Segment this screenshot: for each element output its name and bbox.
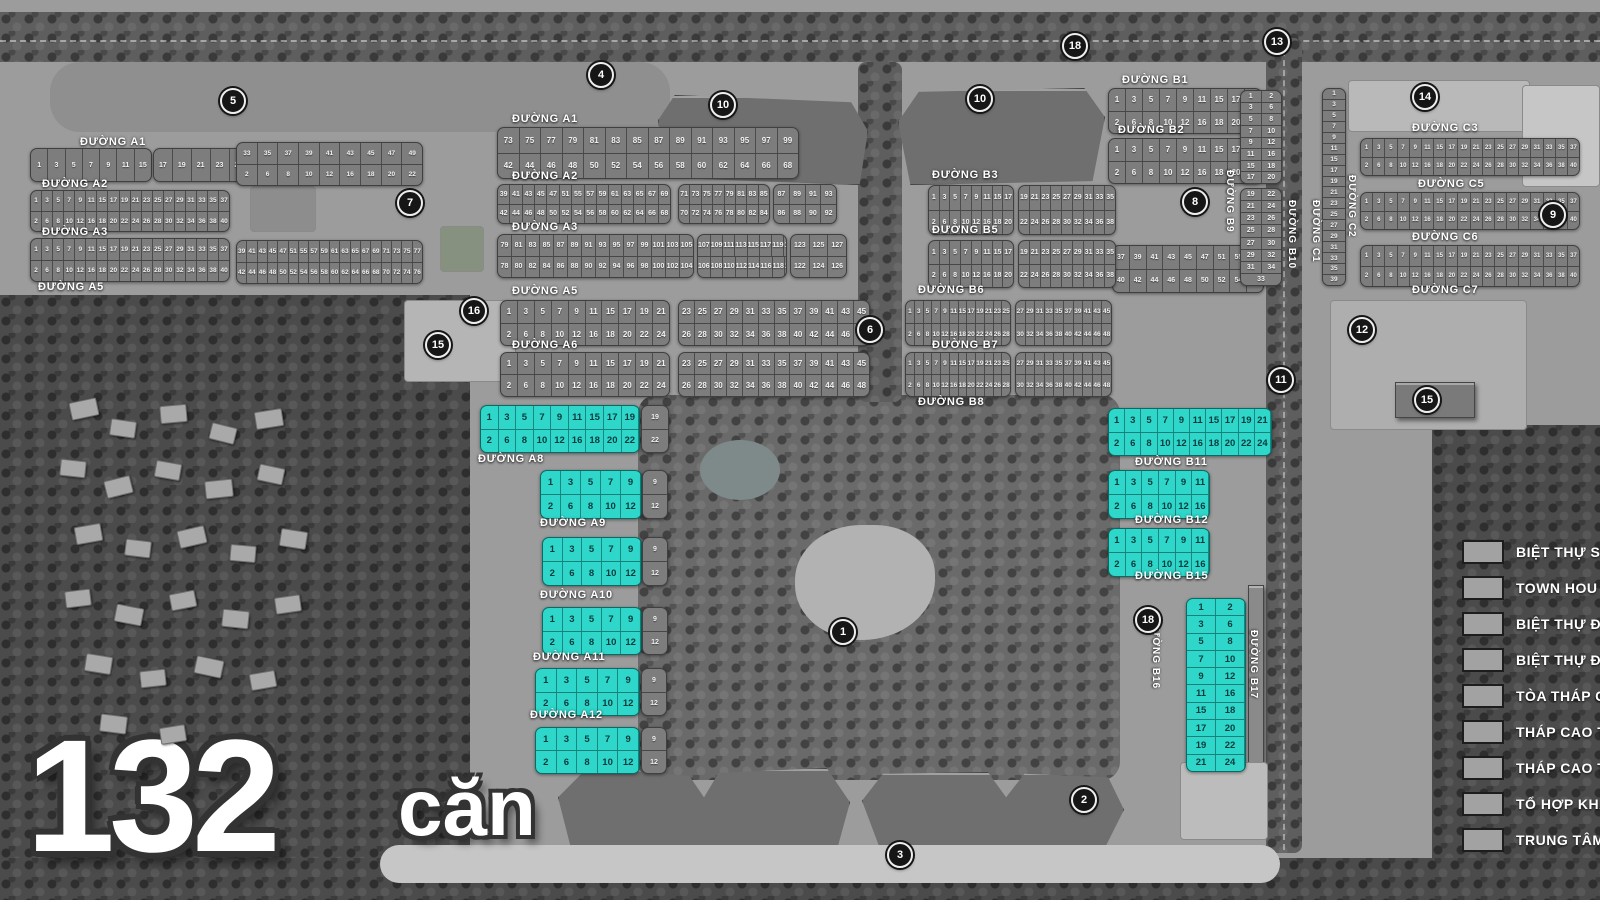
lot-cyA12-r1-2[interactable]: 2 <box>536 751 557 773</box>
street-label-c1: ĐƯỜNG C1 <box>1310 200 1321 263</box>
lot-a1l_s3-r0-37: 37 <box>278 143 299 164</box>
lot-cyB12-r0-11[interactable]: 11 <box>1192 529 1209 552</box>
lot-v1a-r7-17: 17 <box>1241 172 1262 183</box>
lot-row: 1357911151719212325272931333537 <box>1361 246 1579 266</box>
lot-cyA11-r0-9[interactable]: 9 <box>618 669 639 692</box>
lot-c3-r1-36: 36 <box>1544 158 1556 176</box>
lot-cyA_top-r1-6[interactable]: 6 <box>499 430 517 453</box>
lot-cyB16-r2-5[interactable]: 5 <box>1187 634 1216 650</box>
lot-b7s1-r1-20: 20 <box>967 375 976 396</box>
lot-b5s1-r0-1: 1 <box>929 241 940 264</box>
lot-row: 268101216182022 <box>481 429 639 453</box>
lot-cyB_top-r1-2[interactable]: 2 <box>1109 433 1125 456</box>
lot-a1l_s3-r1-8: 8 <box>278 165 299 186</box>
map-marker-7[interactable]: 7 <box>397 190 423 216</box>
lot-a2c2-r1-70: 70 <box>679 205 690 224</box>
lot-cyA9-r0-1[interactable]: 1 <box>543 538 563 561</box>
lot-b3s2-r1-38: 38 <box>1105 211 1115 235</box>
lot-cyA8-r0-3[interactable]: 3 <box>561 471 581 494</box>
lot-cyB16-r1-6[interactable]: 6 <box>1216 616 1245 632</box>
lot-a3l2-r0-67: 67 <box>361 241 371 262</box>
lot-b7s2-r1-40: 40 <box>1064 375 1074 396</box>
lot-a2c1-r0-39: 39 <box>498 185 510 204</box>
lot-b6s2-r0-27: 27 <box>1016 301 1026 323</box>
lot-cyA10-r0-3[interactable]: 3 <box>563 608 583 631</box>
lot-a3l2-r1-64: 64 <box>351 263 361 284</box>
lot-b5s2-r0-33: 33 <box>1094 241 1105 264</box>
lot-a5c2-r1-34: 34 <box>743 324 759 346</box>
lot-b2-r1-6: 6 <box>1126 162 1143 184</box>
lot-cyB_top-r1-8[interactable]: 8 <box>1141 433 1157 456</box>
lot-b6s2-r0-45: 45 <box>1102 301 1111 323</box>
lot-cyB12-r0-3[interactable]: 3 <box>1126 529 1143 552</box>
lot-a1l_s3-r1-22: 22 <box>402 165 422 186</box>
lot-c3-r0-1: 1 <box>1361 139 1373 157</box>
lot-cyA12-r0-1[interactable]: 1 <box>536 728 557 750</box>
street-label-a9: ĐƯỜNG A9 <box>540 517 606 529</box>
lot-cyB16-r8-19[interactable]: 19 <box>1187 737 1216 753</box>
lot-b6s1-r0-23: 23 <box>994 301 1003 323</box>
lot-a3l-r1-2: 2 <box>31 261 42 282</box>
lot-cyB_top-r0-5[interactable]: 5 <box>1141 409 1157 432</box>
lot-cyB_top-r1-6[interactable]: 6 <box>1125 433 1141 456</box>
lot-b7s2-r0-35: 35 <box>1054 353 1064 374</box>
block-tA9: 912 <box>642 537 668 586</box>
lot-c3-r0-27: 27 <box>1507 139 1519 157</box>
lot-b3s2-r1-26: 26 <box>1041 211 1052 235</box>
lot-cyA_top-r1-8[interactable]: 8 <box>516 430 534 453</box>
lot-cyA12-r1-6[interactable]: 6 <box>557 751 578 773</box>
lot-a3l-r1-8: 8 <box>53 261 64 282</box>
lot-cyA_top-r0-7[interactable]: 7 <box>534 406 552 429</box>
lot-c3-r0-25: 25 <box>1495 139 1507 157</box>
lot-b2-r1-8: 8 <box>1143 162 1160 184</box>
lot-a1l_s2-r0-23: 23 <box>211 149 230 181</box>
lot-b7s1-r1-10: 10 <box>932 375 941 396</box>
lot-a2c3-r1-88: 88 <box>790 205 806 224</box>
lot-a3l-r1-16: 16 <box>86 261 97 282</box>
lot-cyA12-r0-3[interactable]: 3 <box>557 728 578 750</box>
lot-cyA8-r1-10[interactable]: 10 <box>601 495 621 518</box>
lot-a6c2-r0-39: 39 <box>806 353 822 374</box>
lot-cyB_top-r0-15[interactable]: 15 <box>1206 409 1222 432</box>
map-marker-15[interactable]: 15 <box>425 332 451 358</box>
lot-a2l-r1-24: 24 <box>131 212 142 232</box>
lot-cyA10-r1-12[interactable]: 12 <box>621 632 641 655</box>
lot-cyB16-r9-21[interactable]: 21 <box>1187 755 1216 771</box>
lot-cyA_top-r0-9[interactable]: 9 <box>551 406 569 429</box>
lot-a2c2-r1-74: 74 <box>702 205 713 224</box>
lot-b6s2-r1-38: 38 <box>1054 324 1064 346</box>
map-marker-8[interactable]: 8 <box>1182 189 1208 215</box>
lot-b7s2-r0-43: 43 <box>1093 353 1103 374</box>
lot-cyB16-r2-8[interactable]: 8 <box>1216 634 1245 650</box>
lot-a3c1-r1-78: 78 <box>498 257 512 278</box>
street-label-a5l: ĐƯỜNG A5 <box>38 281 104 293</box>
map-marker-10[interactable]: 10 <box>967 86 993 112</box>
lot-cyB11-r1-2[interactable]: 2 <box>1109 495 1126 518</box>
lot-a3l2-r0-43: 43 <box>258 241 268 262</box>
lot-a1c-r0-93: 93 <box>713 128 735 153</box>
lot-cyA_top-r1-20[interactable]: 20 <box>604 430 622 453</box>
lot-cyB12-r0-7[interactable]: 7 <box>1159 529 1176 552</box>
lot-cyB16-r3-10[interactable]: 10 <box>1216 651 1245 667</box>
lot-cyA8-r1-6[interactable]: 6 <box>561 495 581 518</box>
lot-a6c2-r1-34: 34 <box>743 375 759 396</box>
lot-c5-r0-7: 7 <box>1398 193 1410 211</box>
lot-a2l-r0-7: 7 <box>64 191 75 211</box>
map-marker-2[interactable]: 2 <box>1071 787 1097 813</box>
lot-row: 13579 <box>543 608 641 631</box>
lot-row: 268101216182022242628303234363840 <box>1361 157 1579 176</box>
lot-cyA_top-r1-12[interactable]: 12 <box>551 430 569 453</box>
lot-a3c2-r1-112: 112 <box>736 257 748 278</box>
lot-b1-r0-7: 7 <box>1160 89 1177 111</box>
lot-a1c-r1-60: 60 <box>692 154 714 179</box>
lot-cyB_top-r1-16[interactable]: 16 <box>1190 433 1206 456</box>
lot-a3l-r1-38: 38 <box>208 261 219 282</box>
lot-row: 9 <box>643 471 667 494</box>
lot-a2c2-r1-80: 80 <box>736 205 747 224</box>
lot-b7s2-r0-41: 41 <box>1083 353 1093 374</box>
map-marker-11[interactable]: 11 <box>1268 367 1294 393</box>
lot-row: 3941434547515557596163656769 <box>498 185 670 204</box>
lot-a5c2-r0-27: 27 <box>711 301 727 323</box>
lot-cyA_top-r1-16[interactable]: 16 <box>569 430 587 453</box>
lot-row: 9 <box>643 538 667 561</box>
lot-cyA9-r1-12[interactable]: 12 <box>621 562 641 585</box>
lot-b3s2-r1-34: 34 <box>1084 211 1095 235</box>
lot-b5s2-r0-21: 21 <box>1030 241 1041 264</box>
map-marker-16[interactable]: 16 <box>461 298 487 324</box>
lot-cyA_top-r0-5[interactable]: 5 <box>516 406 534 429</box>
map-marker-9[interactable]: 9 <box>1540 202 1566 228</box>
lot-cyB_top-r0-19[interactable]: 19 <box>1239 409 1255 432</box>
lot-c3-r1-8: 8 <box>1385 158 1397 176</box>
lot-row: 1357911 <box>1109 529 1209 552</box>
lot-b3s1-r0-5: 5 <box>950 186 961 210</box>
lot-cyA11-r0-5[interactable]: 5 <box>577 669 598 692</box>
lot-a3c1-r0-93: 93 <box>596 235 610 256</box>
lot-a2l-r0-27: 27 <box>164 191 175 211</box>
lot-cyA8-r0-5[interactable]: 5 <box>581 471 601 494</box>
lot-cyA9-r0-5[interactable]: 5 <box>582 538 602 561</box>
master-plan-map: BIỆT THỰ SOTOWN HOUBIỆT THỰ ĐBIỆT THỰ ĐT… <box>0 0 1600 900</box>
lot-cyA_top-r0-19[interactable]: 19 <box>622 406 640 429</box>
map-marker-15[interactable]: 15 <box>1414 387 1440 413</box>
lot-cyB_top-r1-12[interactable]: 12 <box>1174 433 1190 456</box>
street-label-c6: ĐƯỜNG C6 <box>1412 231 1478 243</box>
lot-cyA_top-r0-11[interactable]: 11 <box>569 406 587 429</box>
map-marker-3[interactable]: 3 <box>887 842 913 868</box>
lot-cyA9-r1-10[interactable]: 10 <box>602 562 622 585</box>
lot-a3l2-r0-59: 59 <box>320 241 330 262</box>
lot-cyA12-r1-10[interactable]: 10 <box>598 751 619 773</box>
lot-cyB16-r1-3[interactable]: 3 <box>1187 616 1216 632</box>
lot-cyB_top-r1-18[interactable]: 18 <box>1206 433 1222 456</box>
lot-cyB12-r0-5[interactable]: 5 <box>1142 529 1159 552</box>
lot-a3l2-r1-56: 56 <box>309 263 319 284</box>
lot-cyA12-r1-8[interactable]: 8 <box>577 751 598 773</box>
lot-cyA9-r1-8[interactable]: 8 <box>582 562 602 585</box>
lot-cyB16-r6-18[interactable]: 18 <box>1216 703 1245 719</box>
lot-a5c2-r0-37: 37 <box>790 301 806 323</box>
lot-cyB16-r4-12[interactable]: 12 <box>1216 668 1245 684</box>
map-marker-1[interactable]: 1 <box>830 619 856 645</box>
lot-a3c1-r1-82: 82 <box>526 257 540 278</box>
lot-a2c1-r1-56: 56 <box>585 205 597 224</box>
lot-a6c1-r1-6: 6 <box>518 375 535 396</box>
lot-c6-r0-15: 15 <box>1434 246 1446 266</box>
lot-a6c1-r0-7: 7 <box>552 353 569 374</box>
map-marker-6[interactable]: 6 <box>857 317 883 343</box>
lot-row: 1357911 <box>1109 471 1209 494</box>
lot-row: 1357911151719 <box>1109 139 1261 161</box>
lot-cyB_top-r1-22[interactable]: 22 <box>1239 433 1255 456</box>
lot-cyB11-r0-3[interactable]: 3 <box>1126 471 1143 494</box>
lot-row: 25 <box>1323 208 1345 219</box>
lot-cyA11-r0-7[interactable]: 7 <box>598 669 619 692</box>
lot-row: 58 <box>1187 633 1245 650</box>
lot-cyA_top-r1-22[interactable]: 22 <box>622 430 640 453</box>
lot-cyB_top-r1-24[interactable]: 24 <box>1255 433 1271 456</box>
lot-a3c3-r0-127: 127 <box>828 235 846 256</box>
map-marker-13[interactable]: 13 <box>1264 29 1290 55</box>
lot-cyB16-r7-17[interactable]: 17 <box>1187 720 1216 736</box>
lot-a3c1-r0-81: 81 <box>512 235 526 256</box>
lot-a1c-r0-83: 83 <box>606 128 628 153</box>
lot-cyA12-r0-5[interactable]: 5 <box>577 728 598 750</box>
lot-b3s2-r0-21: 21 <box>1030 186 1041 210</box>
lot-cyA_top-r1-18[interactable]: 18 <box>586 430 604 453</box>
right-forest <box>1432 425 1600 900</box>
lot-cyA11-r0-3[interactable]: 3 <box>557 669 578 692</box>
lot-a2c1-r1-68: 68 <box>659 205 670 224</box>
lot-cyB_top-r0-17[interactable]: 17 <box>1222 409 1238 432</box>
lot-cyB16-r6-15[interactable]: 15 <box>1187 703 1216 719</box>
lot-a3c2-r0-111: 111 <box>723 235 735 256</box>
lot-cyA10-r0-1[interactable]: 1 <box>543 608 563 631</box>
lot-b6s1-r0-3: 3 <box>915 301 924 323</box>
lot-a6c1-r0-15: 15 <box>602 353 619 374</box>
lot-cyA8-r0-9[interactable]: 9 <box>621 471 641 494</box>
lot-cyA9-r0-9[interactable]: 9 <box>621 538 641 561</box>
lot-cyA8-r1-2[interactable]: 2 <box>541 495 561 518</box>
lot-v2-r5-11: 11 <box>1323 144 1345 154</box>
lot-cyB_top-r0-21[interactable]: 21 <box>1255 409 1271 432</box>
lot-a2c2-r1-72: 72 <box>690 205 701 224</box>
lot-cyA10-r0-5[interactable]: 5 <box>582 608 602 631</box>
lot-cyA_top-r1-2[interactable]: 2 <box>481 430 499 453</box>
lot-cyA9-r1-2[interactable]: 2 <box>543 562 563 585</box>
lot-cyA_top-r1-10[interactable]: 10 <box>534 430 552 453</box>
lot-cyA_top-r0-15[interactable]: 15 <box>586 406 604 429</box>
lot-cyA10-r0-9[interactable]: 9 <box>621 608 641 631</box>
lot-cyA8-r0-7[interactable]: 7 <box>601 471 621 494</box>
lot-a5c1-r1-20: 20 <box>619 324 636 346</box>
lot-row: 7375777981838587899193959799 <box>498 128 798 153</box>
lot-cyA9-r1-6[interactable]: 6 <box>563 562 583 585</box>
lot-a3l2-r1-62: 62 <box>340 263 350 284</box>
lot-cyB16-r8-22[interactable]: 22 <box>1216 737 1245 753</box>
lot-a2c1-r0-51: 51 <box>560 185 572 204</box>
lot-cyB16-r5-11[interactable]: 11 <box>1187 685 1216 701</box>
lot-b6s1-r1-2: 2 <box>906 324 915 346</box>
lot-a2c2-r0-83: 83 <box>747 185 758 204</box>
lot-row: 1720 <box>1187 719 1245 736</box>
lot-row: 1 <box>1323 89 1345 99</box>
lot-cyB16-r9-24[interactable]: 24 <box>1216 755 1245 771</box>
lot-cyB11-r0-5[interactable]: 5 <box>1142 471 1159 494</box>
lot-b7s2-r1-38: 38 <box>1054 375 1064 396</box>
lot-a2l-r1-2: 2 <box>31 212 42 232</box>
map-marker-18[interactable]: 18 <box>1135 607 1161 633</box>
lot-cyB_top-r1-20[interactable]: 20 <box>1222 433 1238 456</box>
lot-b6s2-r1-36: 36 <box>1045 324 1055 346</box>
lot-cyB11-r0-7[interactable]: 7 <box>1159 471 1176 494</box>
lot-cyB_top-r0-9[interactable]: 9 <box>1174 409 1190 432</box>
block-cyA12: 135792681012 <box>535 727 640 774</box>
lot-cyB_top-r0-7[interactable]: 7 <box>1158 409 1174 432</box>
lot-c6-r0-3: 3 <box>1373 246 1385 266</box>
lot-row: 1518 <box>1187 702 1245 719</box>
lot-c6-r1-34: 34 <box>1531 267 1543 287</box>
lot-a1c-r1-66: 66 <box>756 154 778 179</box>
lot-cyA_top-r0-3[interactable]: 3 <box>499 406 517 429</box>
lot-cyB11-r0-1[interactable]: 1 <box>1109 471 1126 494</box>
lot-a3l-r0-3: 3 <box>42 239 53 260</box>
lot-row: 87899193 <box>774 185 836 204</box>
lot-cyB16-r4-9[interactable]: 9 <box>1187 668 1216 684</box>
lot-cyA8-r0-1[interactable]: 1 <box>541 471 561 494</box>
lot-a3l2-r1-54: 54 <box>299 263 309 284</box>
lot-v1b-r6-31: 31 <box>1241 262 1262 273</box>
lot-cyA12-r1-12[interactable]: 12 <box>618 751 639 773</box>
street-label-a2c: ĐƯỜNG A2 <box>512 170 578 182</box>
lot-b6s2-r1-40: 40 <box>1064 324 1074 346</box>
lot-c6-r0-17: 17 <box>1446 246 1458 266</box>
lot-cyA12-r0-9[interactable]: 9 <box>618 728 639 750</box>
lot-v1b-r2-26: 26 <box>1262 213 1282 224</box>
lot-row: 35 <box>1323 263 1345 274</box>
lot-a6c2-r0-35: 35 <box>775 353 791 374</box>
map-marker-14[interactable]: 14 <box>1412 84 1438 110</box>
lot-a5c2-r0-29: 29 <box>727 301 743 323</box>
lot-c5-r1-20: 20 <box>1446 212 1458 230</box>
lot-v1b-r1-24: 24 <box>1262 201 1282 212</box>
lot-a5c2-r0-43: 43 <box>838 301 854 323</box>
lot-row: 2681012 <box>543 561 641 585</box>
map-marker-18[interactable]: 18 <box>1062 33 1088 59</box>
block-cyB16: 12365871091211161518172019222124 <box>1186 598 1246 772</box>
lot-c5-r1-8: 8 <box>1385 212 1397 230</box>
lot-cyB_top-r0-1[interactable]: 1 <box>1109 409 1125 432</box>
lot-b2-r0-11: 11 <box>1194 139 1211 161</box>
lot-row: 12 <box>1241 91 1281 102</box>
lot-c5-r0-23: 23 <box>1483 193 1495 211</box>
lot-c6-r1-40: 40 <box>1568 267 1579 287</box>
lot-a3c2-r0-117: 117 <box>760 235 772 256</box>
lot-a1l_s3-r0-45: 45 <box>361 143 382 164</box>
lot-b7s2-r0-39: 39 <box>1074 353 1084 374</box>
lot-a5c2-r0-35: 35 <box>775 301 791 323</box>
lot-tA9-r0-9: 9 <box>643 538 667 561</box>
block-a2c2: 71737577798183857072747678808284 <box>678 184 770 224</box>
lot-a3c1-r0-103: 103 <box>666 235 680 256</box>
lot-v1a-r2-5: 5 <box>1241 114 1262 125</box>
lot-cyA8-r1-12[interactable]: 12 <box>621 495 641 518</box>
lot-a3c3-r1-126: 126 <box>828 257 846 278</box>
lot-b7s1-r0-3: 3 <box>915 353 924 374</box>
lot-cyB16-r5-16[interactable]: 16 <box>1216 685 1245 701</box>
lot-a2c1-r0-43: 43 <box>523 185 535 204</box>
lot-c3-r0-11: 11 <box>1422 139 1434 157</box>
map-marker-4[interactable]: 4 <box>588 62 614 88</box>
map-marker-5[interactable]: 5 <box>220 88 246 114</box>
map-marker-12[interactable]: 12 <box>1349 317 1375 343</box>
lot-cyA11-r1-12[interactable]: 12 <box>618 693 639 716</box>
lot-cyB12-r1-2[interactable]: 2 <box>1109 553 1126 576</box>
lot-c6-r0-29: 29 <box>1519 246 1531 266</box>
street-label-c5: ĐƯỜNG C5 <box>1418 178 1484 190</box>
lot-cyB12-r0-1[interactable]: 1 <box>1109 529 1126 552</box>
lot-c5-r0-1: 1 <box>1361 193 1373 211</box>
lot-cyA9-r0-3[interactable]: 3 <box>563 538 583 561</box>
lot-cyA_top-r0-17[interactable]: 17 <box>604 406 622 429</box>
lot-row: 33 <box>1323 252 1345 263</box>
lot-cyA11-r0-1[interactable]: 1 <box>536 669 557 692</box>
lot-a1c-r1-54: 54 <box>627 154 649 179</box>
lot-row: 1116 <box>1187 684 1245 701</box>
lot-b6s2-r0-41: 41 <box>1083 301 1093 323</box>
lot-cyB16-r0-1[interactable]: 1 <box>1187 599 1216 615</box>
lot-cyB16-r3-7[interactable]: 7 <box>1187 651 1216 667</box>
lot-cyA8-r1-8[interactable]: 8 <box>581 495 601 518</box>
street-label-b7: ĐƯỜNG B7 <box>932 339 998 351</box>
lot-cyB_top-r0-3[interactable]: 3 <box>1125 409 1141 432</box>
lot-cyB11-r0-11[interactable]: 11 <box>1192 471 1209 494</box>
lot-tA10-r0-9: 9 <box>643 608 667 631</box>
lot-cyA9-r0-7[interactable]: 7 <box>602 538 622 561</box>
lot-a1c-r1-56: 56 <box>649 154 671 179</box>
lot-cyB12-r0-9[interactable]: 9 <box>1176 529 1193 552</box>
lot-a6c2-r1-32: 32 <box>727 375 743 396</box>
lot-cyB_top-r1-10[interactable]: 10 <box>1158 433 1174 456</box>
lot-c3-r1-26: 26 <box>1483 158 1495 176</box>
lot-c5-r1-24: 24 <box>1471 212 1483 230</box>
lot-a2c1-r1-64: 64 <box>634 205 646 224</box>
lot-cyB11-r0-9[interactable]: 9 <box>1176 471 1193 494</box>
lot-cyA_top-r0-1[interactable]: 1 <box>481 406 499 429</box>
lot-row: 9 <box>1323 132 1345 143</box>
lot-a3l2-r0-57: 57 <box>309 241 319 262</box>
lot-a3c2-r0-109: 109 <box>711 235 724 256</box>
lot-a3c3-r0-125: 125 <box>810 235 829 256</box>
lot-c3-r1-10: 10 <box>1398 158 1410 176</box>
lot-cyA10-r0-7[interactable]: 7 <box>602 608 622 631</box>
lot-a2l-r0-1: 1 <box>31 191 42 211</box>
lot-row: 262830323436384042444648 <box>679 323 869 346</box>
lot-cyB16-r0-2[interactable]: 2 <box>1216 599 1245 615</box>
lot-cyB_top-r0-11[interactable]: 11 <box>1190 409 1206 432</box>
lot-a2c3-r0-91: 91 <box>806 185 822 204</box>
map-marker-10[interactable]: 10 <box>710 92 736 118</box>
lot-a6c2-r1-30: 30 <box>711 375 727 396</box>
lot-cyB16-r7-20[interactable]: 20 <box>1216 720 1245 736</box>
lot-cyA12-r0-7[interactable]: 7 <box>598 728 619 750</box>
lot-v1a-r6-15: 15 <box>1241 161 1262 172</box>
lot-row: 268101216182022242628 <box>906 374 1010 396</box>
